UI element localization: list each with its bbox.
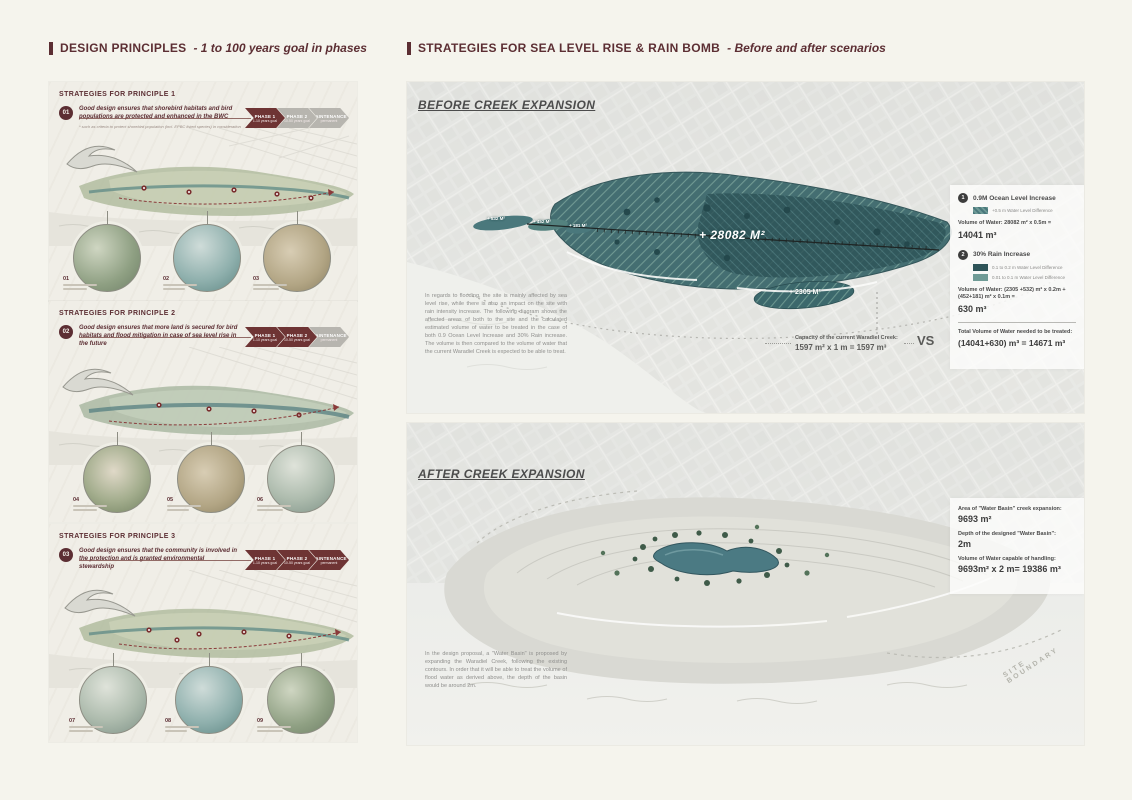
inset-photo [175, 666, 243, 734]
inset-caption [163, 284, 197, 292]
header-accent-bar [49, 42, 53, 55]
capacity-value: 1597 m² x 1 m = 1597 m³ [795, 343, 898, 352]
swatch-label: 0.1 to 0.2 m Water Level Difference [992, 265, 1063, 270]
inset-caption [69, 726, 103, 734]
area-label-small: + 452 M² [533, 219, 551, 224]
dotted-connector [904, 343, 914, 344]
principle-panel-3: STRATEGIES FOR PRINCIPLE 3 03 Good desig… [49, 524, 357, 742]
phase-arrows-1: PHASE 1 1-10 years goal PHASE 2 10-50 ye… [253, 108, 349, 128]
left-header-title: DESIGN PRINCIPLES [60, 41, 186, 55]
inset-number: 06 [257, 497, 263, 503]
inset-caption [257, 505, 291, 513]
inset-photo [73, 224, 141, 292]
inset-number: 04 [73, 497, 79, 503]
stat-label: Area of "Water Basin" creek expansion: [958, 506, 1076, 512]
swatch-rain-light [973, 274, 988, 281]
legend-title: 0.9M Ocean Level Increase [973, 195, 1056, 202]
phase-sublabel: 10-50 years goal [284, 561, 310, 565]
inset-number: 03 [253, 276, 259, 282]
creek-capacity-block: Capacity of the current Waradiel Creek: … [795, 335, 898, 352]
phase-sublabel: 10-50 years goal [284, 119, 310, 123]
header-accent-bar [407, 42, 411, 55]
tern-bird-icon [67, 146, 137, 172]
phase-sublabel: 10-50 years goal [284, 338, 310, 342]
before-scenario-panel: BEFORE CREEK EXPANSION + 28082 M² + 2305… [407, 82, 1084, 413]
legend-total-label: Total Volume of Water needed to be treat… [958, 329, 1076, 335]
inset-caption [73, 505, 107, 513]
stat-label: Depth of the designed "Water Basin": [958, 531, 1076, 537]
legend-total-value: (14041+630) m³ = 14671 m³ [958, 338, 1076, 348]
after-scenario-panel: AFTER CREEK EXPANSION Area of "Water Bas… [407, 423, 1084, 745]
capacity-label: Capacity of the current Waradiel Creek: [795, 335, 898, 341]
inset-number: 08 [165, 718, 171, 724]
inset-photo [173, 224, 241, 292]
inset-caption [63, 284, 97, 292]
inset-caption [257, 726, 291, 734]
left-section-header: DESIGN PRINCIPLES - 1 to 100 years goal … [49, 41, 367, 55]
after-paragraph: In the design proposal, a "Water Basin" … [425, 651, 567, 691]
principle-3-header: STRATEGIES FOR PRINCIPLE 3 [59, 533, 175, 540]
stat-volume: Volume of Water capable of handling: 969… [958, 556, 1076, 574]
photo-insets-2: 04 05 06 [49, 441, 357, 519]
phase-chevron: PHASE 1 1-10 years goal [245, 550, 285, 570]
inset-photo [177, 445, 245, 513]
swatch-label: 0.01 to 0.1 m Water Level Difference [992, 275, 1065, 280]
tern-bird-icon [63, 369, 133, 395]
phase-chevron: PHASE 1 1-10 years goal [245, 327, 285, 347]
inset-number: 09 [257, 718, 263, 724]
stat-value: 2m [958, 539, 1076, 549]
legend-result: 14041 m³ [958, 230, 1076, 240]
right-header-subtitle: - Before and after scenarios [727, 41, 886, 55]
dotted-connector [765, 343, 791, 344]
stat-value: 9693 m² [958, 514, 1076, 524]
inset-photo [267, 666, 335, 734]
area-label-small: + 181 M² [569, 223, 587, 228]
legend-item-ocean: 1 0.9M Ocean Level Increase +0.5 m Water… [958, 193, 1076, 240]
inset-number: 01 [63, 276, 69, 282]
before-heading: BEFORE CREEK EXPANSION [418, 98, 595, 112]
inset-caption [165, 726, 199, 734]
swatch-rain-dark [973, 264, 988, 271]
legend-formula: Volume of Water: (2305 +532) m² x 0.2m +… [958, 287, 1076, 302]
phase-chevron: PHASE 1 1-10 years goal [245, 108, 285, 128]
design-board: DESIGN PRINCIPLES - 1 to 100 years goal … [0, 0, 1132, 800]
inset-caption [253, 284, 287, 292]
legend-formula: Volume of Water: 28082 m² x 0.5m = [958, 220, 1076, 228]
legend-number-badge: 2 [958, 250, 968, 260]
principle-1-header: STRATEGIES FOR PRINCIPLE 1 [59, 91, 175, 98]
legend-result: 630 m³ [958, 304, 1076, 314]
photo-insets-3: 07 08 09 [49, 662, 357, 740]
phase-sublabel: 1-10 years goal [253, 338, 277, 342]
swatch-label: +0.5 m Water Level Difference [992, 208, 1053, 213]
area-label-main: + 28082 M² [699, 228, 765, 242]
legend-number-badge: 1 [958, 193, 968, 203]
inset-number: 07 [69, 718, 75, 724]
stat-area: Area of "Water Basin" creek expansion: 9… [958, 506, 1076, 524]
stat-depth: Depth of the designed "Water Basin": 2m [958, 531, 1076, 549]
inset-number: 05 [167, 497, 173, 503]
area-label-secondary: + 2305 M² [789, 289, 821, 296]
legend-item-rain: 2 30% Rain Increase 0.1 to 0.2 m Water L… [958, 250, 1076, 314]
swatch-ocean-hatch [973, 207, 988, 214]
right-header-title: STRATEGIES FOR SEA LEVEL RISE & RAIN BOM… [418, 41, 720, 55]
phase-arrows-3: PHASE 1 1-10 years goal PHASE 2 10-50 ye… [253, 550, 349, 570]
inset-photo [267, 445, 335, 513]
phase-sublabel: 1-10 years goal [253, 119, 277, 123]
after-heading: AFTER CREEK EXPANSION [418, 467, 585, 481]
stat-value: 9693m² x 2 m= 19386 m³ [958, 564, 1076, 574]
inset-photo [83, 445, 151, 513]
legend-title: 30% Rain Increase [973, 251, 1030, 258]
principle-2-badge: 02 [59, 325, 73, 339]
phase-sublabel: permanent [321, 561, 338, 565]
inset-photo [79, 666, 147, 734]
timeline-line [79, 337, 251, 338]
vs-label: VS [917, 333, 934, 348]
principle-panel-1: STRATEGIES FOR PRINCIPLE 1 01 Good desig… [49, 82, 357, 301]
principle-3-badge: 03 [59, 548, 73, 562]
before-legend-card: 1 0.9M Ocean Level Increase +0.5 m Water… [950, 185, 1084, 369]
phase-sublabel: permanent [321, 338, 338, 342]
inset-number: 02 [163, 276, 169, 282]
inset-caption [167, 505, 201, 513]
timeline-line [79, 118, 251, 119]
legend-divider [958, 322, 1076, 323]
phase-sublabel: 1-10 years goal [253, 561, 277, 565]
photo-insets-1: 01 02 03 [49, 220, 357, 298]
before-paragraph: In regards to flooding, the site is main… [425, 293, 567, 357]
principle-2-header: STRATEGIES FOR PRINCIPLE 2 [59, 310, 175, 317]
phase-sublabel: permanent [321, 119, 338, 123]
after-legend-card: Area of "Water Basin" creek expansion: 9… [950, 498, 1084, 594]
tern-bird-icon [65, 590, 135, 616]
left-header-subtitle: - 1 to 100 years goal in phases [193, 41, 366, 55]
phase-arrows-2: PHASE 1 1-10 years goal PHASE 2 10-50 ye… [253, 327, 349, 347]
inset-photo [263, 224, 331, 292]
stat-label: Volume of Water capable of handling: [958, 556, 1076, 562]
timeline-line [79, 560, 251, 561]
right-section-header: STRATEGIES FOR SEA LEVEL RISE & RAIN BOM… [407, 41, 886, 55]
principle-panel-2: STRATEGIES FOR PRINCIPLE 2 02 Good desig… [49, 301, 357, 522]
principle-1-badge: 01 [59, 106, 73, 120]
area-label-small: + 532 M² [487, 216, 505, 221]
